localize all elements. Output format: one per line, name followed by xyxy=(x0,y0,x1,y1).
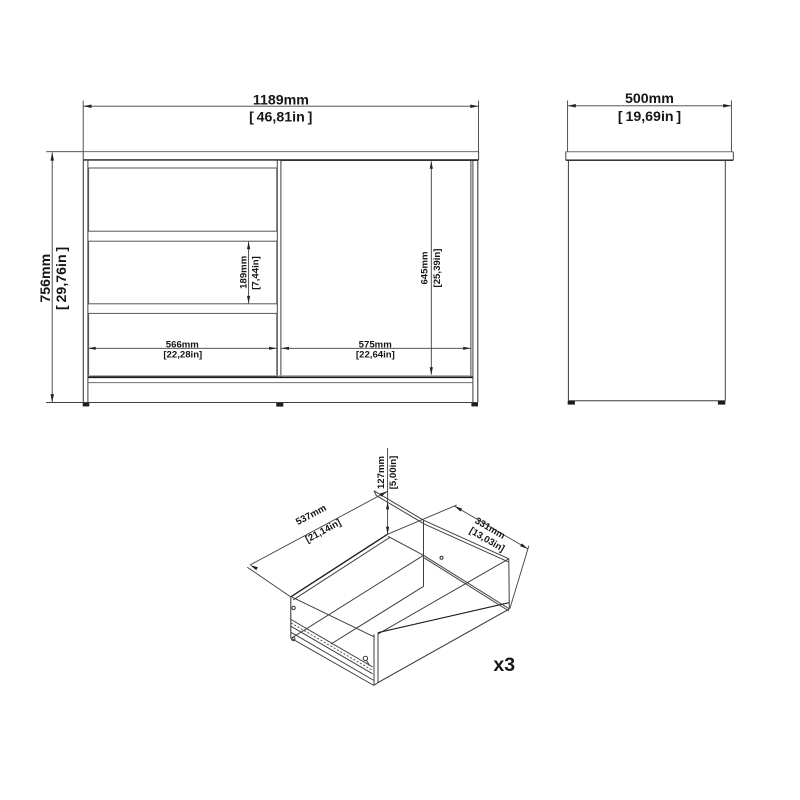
svg-text:[7,44in]: [7,44in] xyxy=(250,256,261,290)
svg-text:756mm: 756mm xyxy=(38,254,54,303)
svg-text:127mm: 127mm xyxy=(376,456,387,489)
svg-text:x3: x3 xyxy=(493,654,515,676)
svg-text:[22,64in]: [22,64in] xyxy=(356,350,395,361)
svg-text:[5,00in]: [5,00in] xyxy=(388,456,399,490)
svg-text:[ 19,69in ]: [ 19,69in ] xyxy=(618,109,681,125)
svg-text:[ 29,76in ]: [ 29,76in ] xyxy=(54,247,70,310)
svg-text:[22,28in]: [22,28in] xyxy=(163,350,202,361)
svg-text:500mm: 500mm xyxy=(625,91,674,107)
svg-text:[25,39in]: [25,39in] xyxy=(432,249,443,288)
svg-text:[ 46,81in ]: [ 46,81in ] xyxy=(249,110,312,126)
svg-text:189mm: 189mm xyxy=(238,256,249,289)
svg-text:1189mm: 1189mm xyxy=(253,93,309,109)
svg-text:645mm: 645mm xyxy=(420,251,431,284)
